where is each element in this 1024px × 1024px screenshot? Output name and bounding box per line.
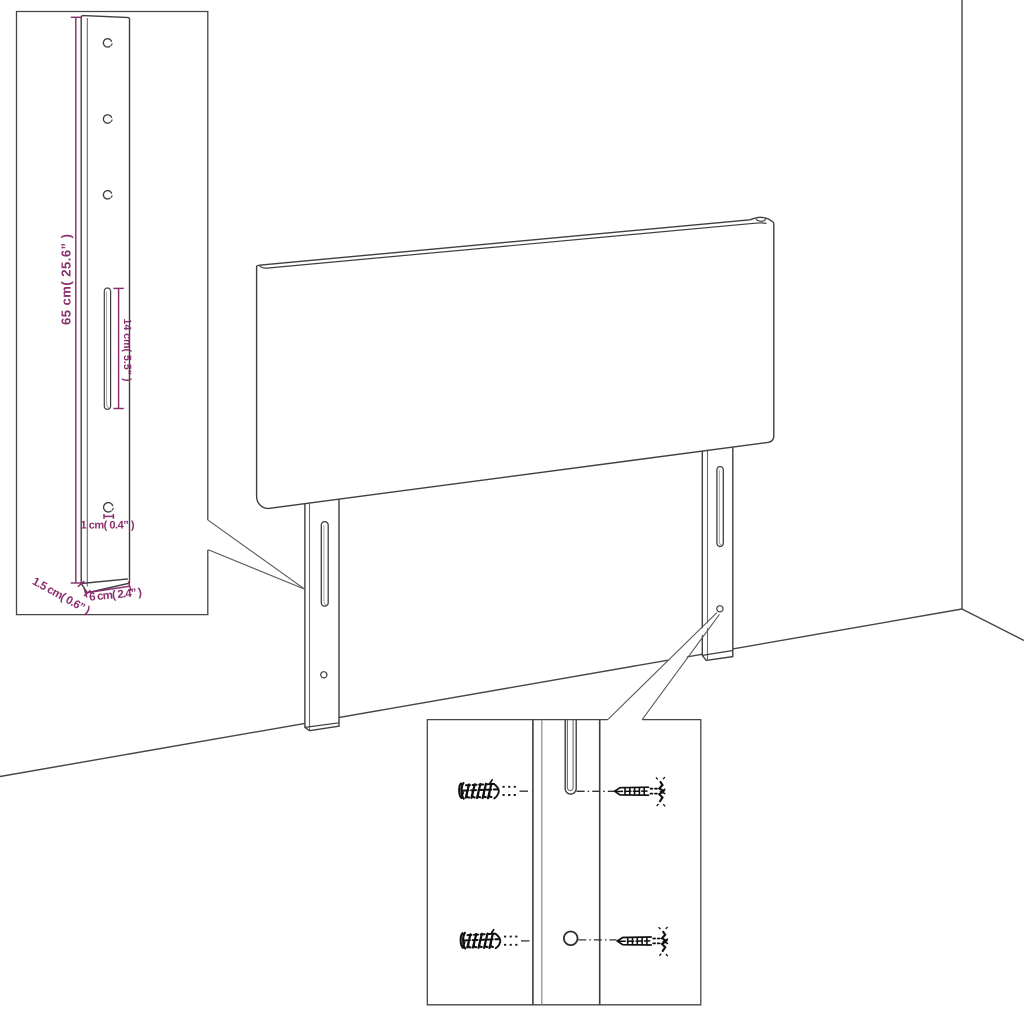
svg-text:65 cm( 25.6” ): 65 cm( 25.6” ) — [58, 234, 73, 325]
svg-text:1 cm( 0.4” ): 1 cm( 0.4” ) — [81, 520, 135, 532]
svg-text:14 cm( 5.5” ): 14 cm( 5.5” ) — [121, 319, 133, 382]
